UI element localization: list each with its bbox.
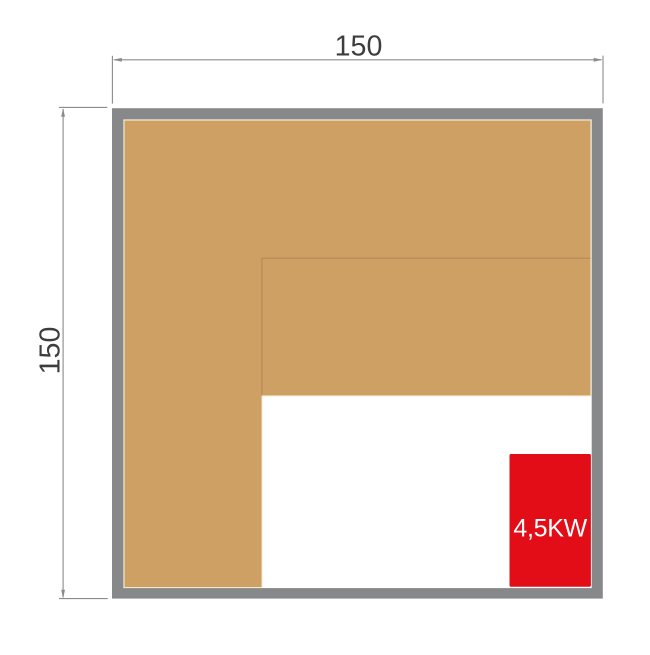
svg-text:150: 150 [34, 327, 66, 375]
svg-text:150: 150 [335, 31, 383, 63]
svg-text:4,5KW: 4,5KW [513, 515, 587, 543]
